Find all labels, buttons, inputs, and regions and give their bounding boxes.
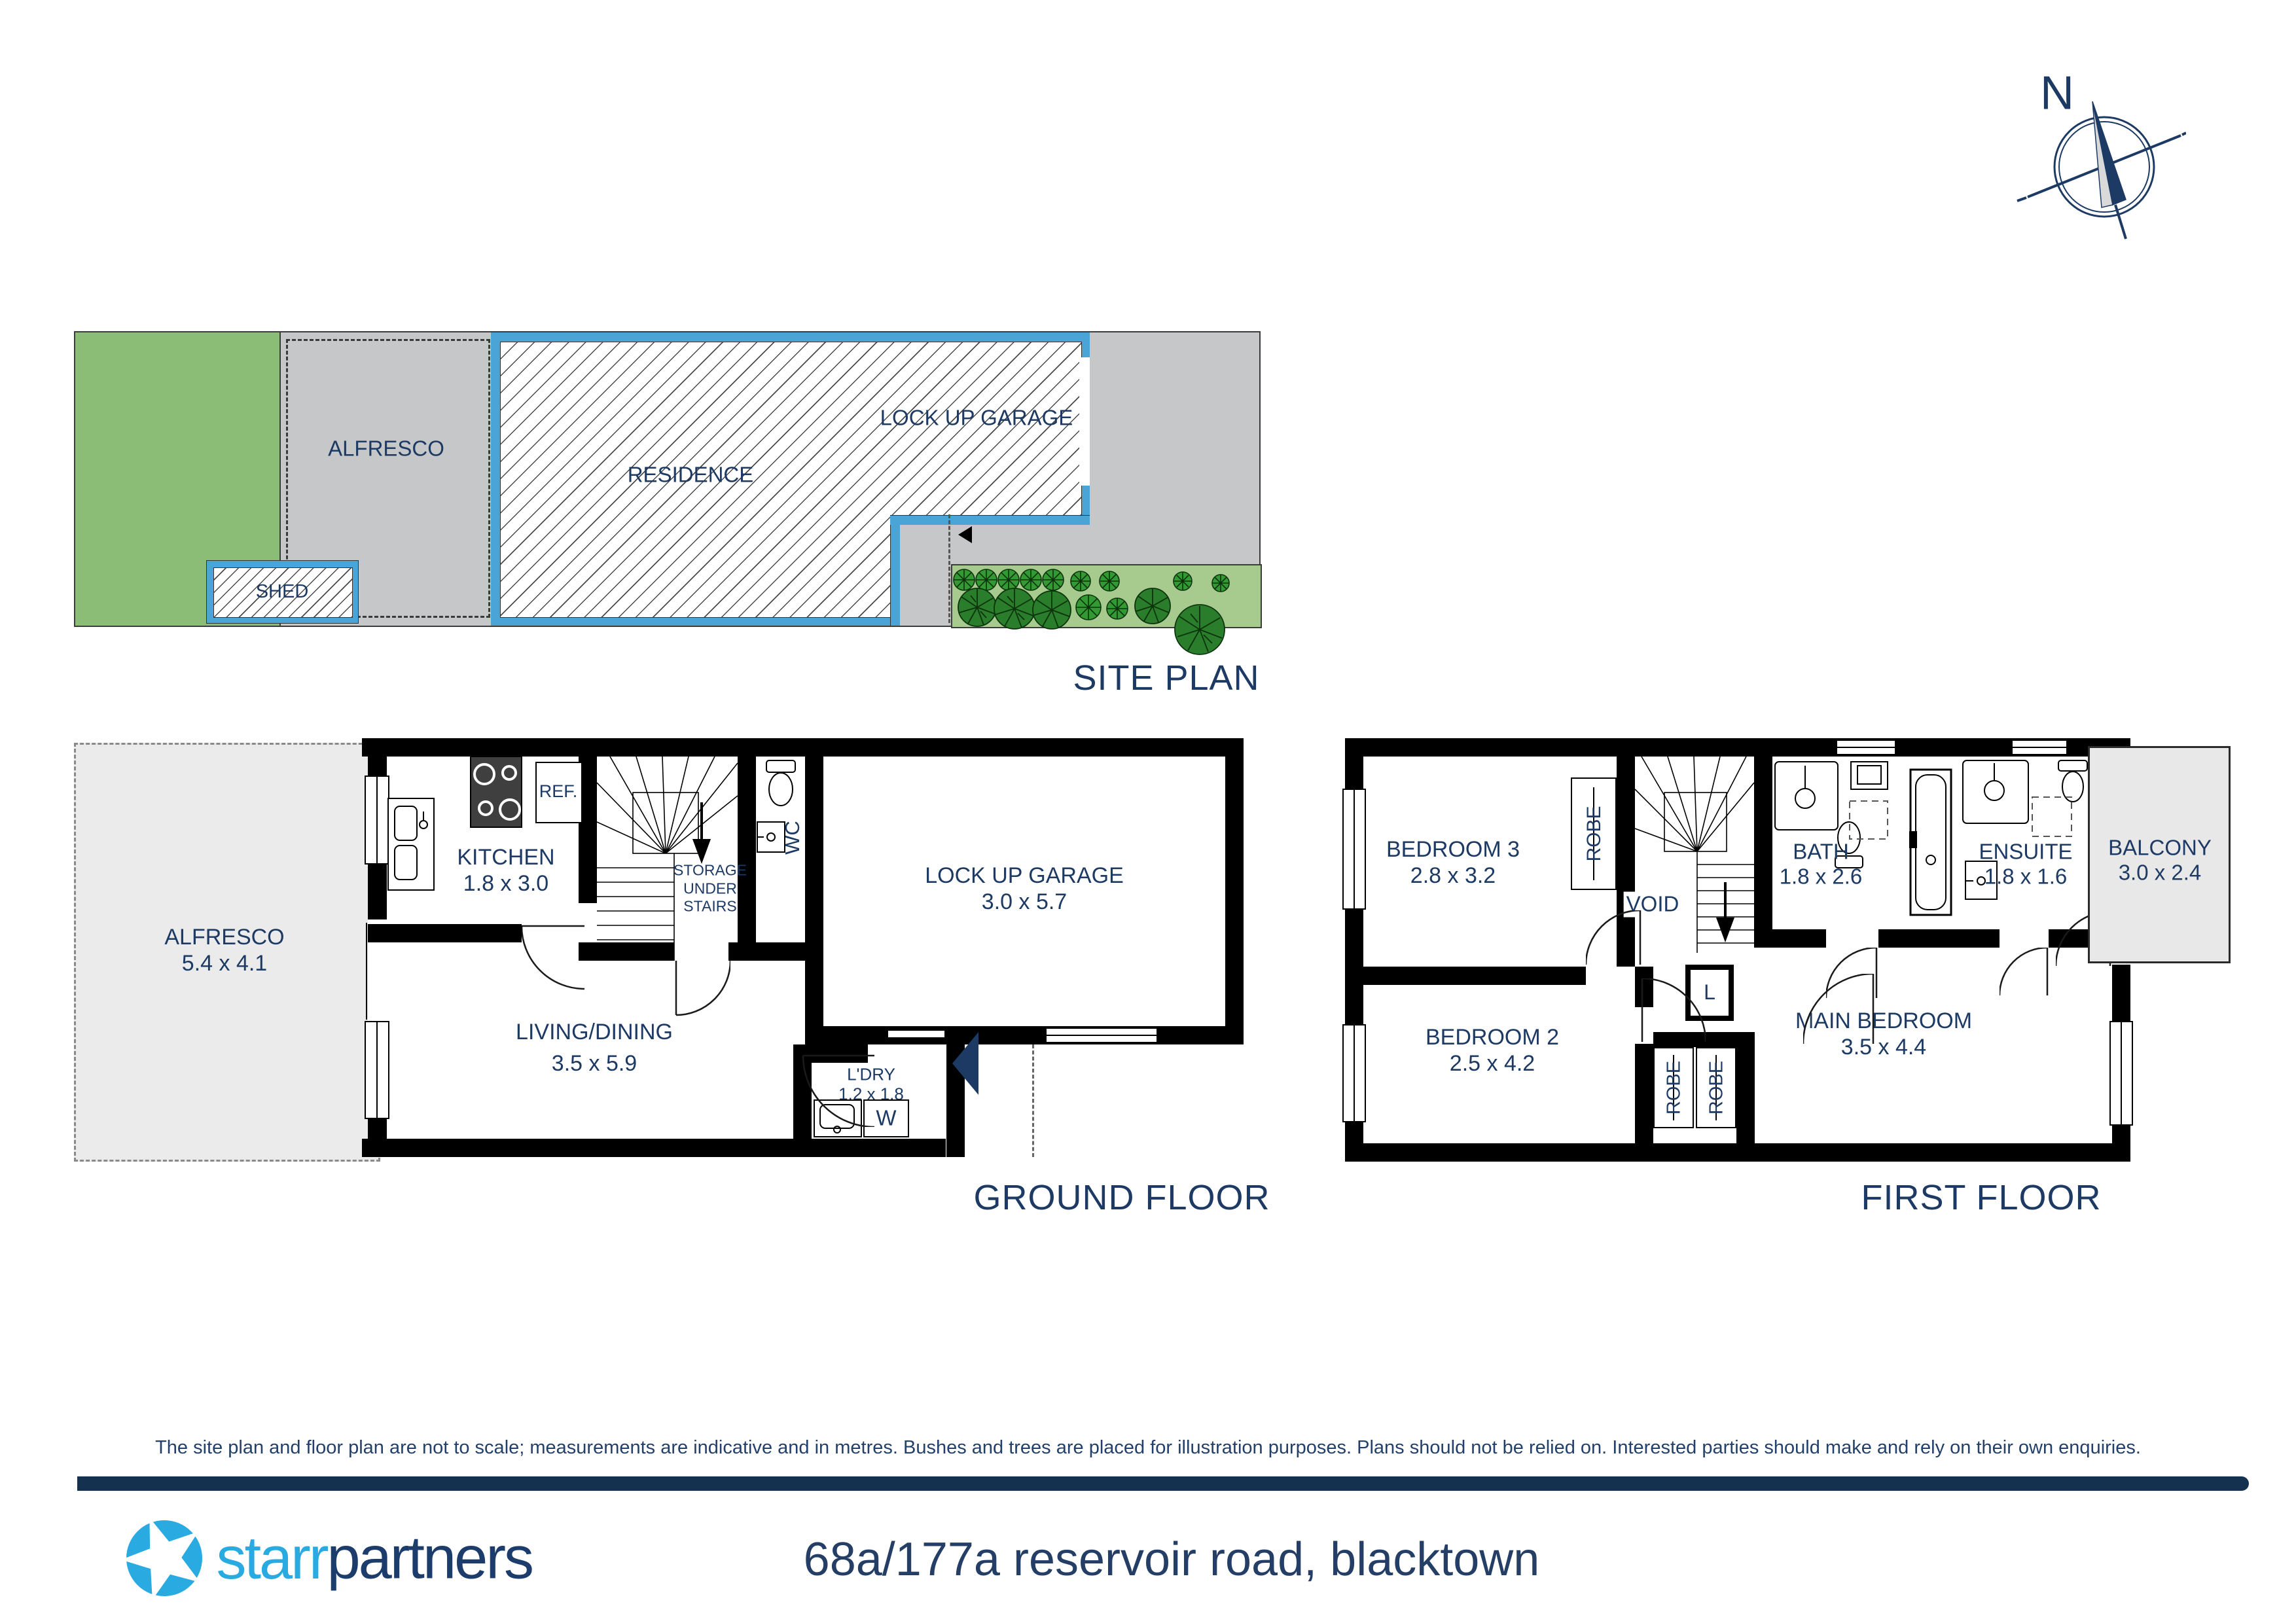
ff-bed2-name: BEDROOM 2 <box>1426 1024 1559 1050</box>
site-plan: ALFRESCO RESIDENCE LOCK UP GARAGE SHED <box>74 331 1261 627</box>
compass-north-label: N <box>2040 66 2074 122</box>
ff-bath-dims: 1.8 x 2.6 <box>1780 865 1863 890</box>
ff-robe-main-label: ROBE <box>1706 1061 1728 1115</box>
gf-storage-label: STORAGE UNDER STAIRS <box>673 862 747 916</box>
site-garage-opening <box>1079 357 1090 486</box>
gf-garage-door <box>1045 1027 1158 1043</box>
ff-wall-bath-bottom-a <box>1754 929 1826 948</box>
gf-living-dims: 3.5 x 5.9 <box>552 1050 637 1077</box>
ff-wall-bottom <box>1345 1143 2130 1162</box>
ff-bed2-dims: 2.5 x 4.2 <box>1450 1050 1535 1077</box>
gf-living-name: LIVING/DINING <box>516 1019 673 1045</box>
ff-bath-door-arc <box>1826 948 1878 1000</box>
brand-starr: starr <box>216 1525 327 1592</box>
bathtub-icon <box>1909 768 1952 916</box>
ff-wall-hall-b <box>1635 1044 1653 1143</box>
gf-fridge-label: REF. <box>539 781 578 802</box>
gf-garage-window-strip <box>888 1030 945 1038</box>
ff-bed3-door-arc <box>1586 910 1642 967</box>
ff-stairs-icon <box>1635 757 1754 953</box>
first-floor-title: FIRST FLOOR <box>1861 1177 2101 1218</box>
ff-bath-name: BATH <box>1793 840 1849 865</box>
gf-alfresco-dims: 5.4 x 4.1 <box>182 950 267 976</box>
ff-ensuite-name: ENSUITE <box>1979 840 2072 865</box>
gf-living-window <box>365 1021 389 1119</box>
gf-wc-label: WC <box>781 821 804 855</box>
ff-main-window <box>2109 1021 2133 1126</box>
starr-star-icon <box>124 1518 204 1598</box>
gf-garage-dims: 3.0 x 5.7 <box>982 889 1067 915</box>
gf-sliding-door-line <box>366 923 367 1020</box>
first-floor-plan: BEDROOM 3 2.8 x 3.2 ROBE VOID BATH 1.8 x… <box>1345 738 2130 1165</box>
ff-wall-bath-left <box>1754 757 1772 948</box>
gf-wall-top <box>362 738 1244 757</box>
ff-wall-bed3-bottom <box>1363 967 1586 985</box>
gf-entry-arrow-icon <box>952 1032 978 1095</box>
footer-address: 68a/177a reservoir road, blacktown <box>766 1533 1577 1586</box>
gf-kitchen-dims: 1.8 x 3.0 <box>463 870 548 897</box>
gf-wall-bottom <box>362 1139 946 1157</box>
ff-bath-window <box>1836 740 1896 755</box>
brand-logo: starrpartners <box>124 1518 532 1598</box>
ground-floor-title: GROUND FLOOR <box>973 1177 1270 1218</box>
garden-trees-icon <box>952 565 1261 670</box>
site-notch-wall-left <box>890 515 900 626</box>
site-garden-strip <box>951 564 1262 628</box>
ground-floor-plan: ALFRESCO 5.4 x 4.1 REF. KITCHEN 1.8 x <box>74 738 1252 1165</box>
site-shed-label: SHED <box>256 580 309 603</box>
ff-robe3-label: ROBE <box>1583 806 1605 861</box>
gf-storage-door-arc <box>674 961 730 1017</box>
disclaimer-text: The site plan and floor plan are not to … <box>0 1437 2296 1459</box>
ff-wall-bath-bottom-b <box>1878 929 2000 948</box>
ff-bed3-dims: 2.8 x 3.2 <box>1410 863 1496 889</box>
gf-kitchen-window <box>365 776 389 865</box>
site-driveway-dash <box>948 514 950 623</box>
ff-robe2-label: ROBE <box>1664 1061 1685 1115</box>
gf-wall-garage-right <box>1225 738 1244 1044</box>
site-alfresco-label: ALFRESCO <box>328 437 444 462</box>
site-garage-label: LOCK UP GARAGE <box>880 406 1073 431</box>
brand-partners: partners <box>327 1525 532 1592</box>
ff-bed3-window <box>1342 789 1366 910</box>
gf-alfresco-name: ALFRESCO <box>164 924 284 950</box>
gf-garage-name: LOCK UP GARAGE <box>925 863 1124 889</box>
ff-ensuite-door-arc <box>2000 948 2049 997</box>
ff-ensuite-dims: 1.8 x 1.6 <box>1984 865 2068 890</box>
gf-entry-door-arc <box>801 1054 874 1127</box>
gf-wall-garage-left <box>805 738 823 1044</box>
ff-bed2-window <box>1342 1024 1366 1122</box>
floorplan-sheet: { "compass": { "north": "N" }, "site_pla… <box>0 0 2296 1623</box>
ff-bed3-name: BEDROOM 3 <box>1386 836 1520 863</box>
site-residence-label: RESIDENCE <box>628 463 754 488</box>
gf-washer-label: W <box>876 1106 896 1132</box>
site-entry-arrow-icon <box>958 526 972 543</box>
ff-balcony-name: BALCONY <box>2108 836 2212 861</box>
site-shed: SHED <box>206 560 359 624</box>
site-plan-title: SITE PLAN <box>1073 658 1259 698</box>
gf-driveway-dash <box>1032 1044 1034 1157</box>
gf-stairs-icon <box>597 757 738 961</box>
footer-divider <box>77 1476 2249 1491</box>
ff-wall-robe-right <box>1736 1047 1755 1143</box>
ff-bed2-door-arc <box>1640 978 1706 1044</box>
ff-ensuite-window <box>2011 740 2068 755</box>
gf-wall-stairs-bottom-b <box>728 942 823 961</box>
site-notch-wall-top <box>890 515 1090 525</box>
gf-kitchen-name: KITCHEN <box>457 844 554 870</box>
gf-wall-garage-bottom <box>805 1026 1244 1044</box>
gf-kitchen-door-arc <box>522 924 584 991</box>
ff-balcony-dims: 3.0 x 2.4 <box>2119 861 2202 886</box>
